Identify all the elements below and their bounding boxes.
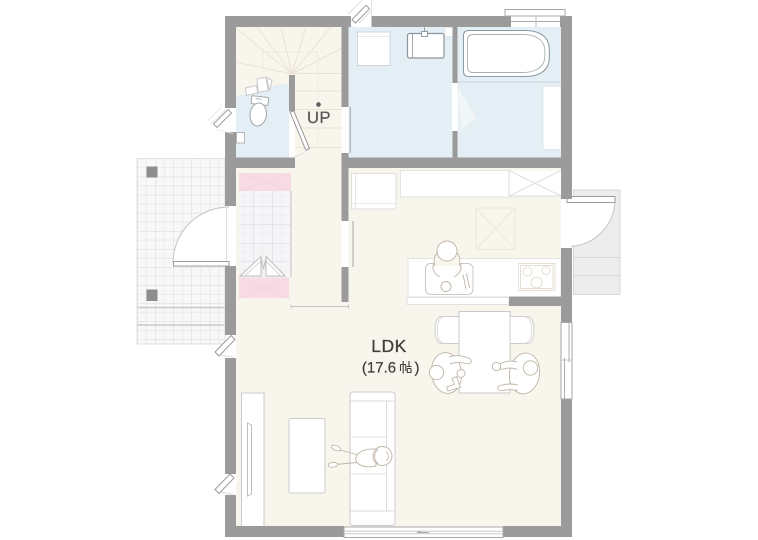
svg-text:(17.6: (17.6 [362, 359, 396, 376]
svg-text:UP: UP [307, 109, 331, 127]
svg-text:): ) [414, 359, 419, 376]
svg-text:LDK: LDK [371, 336, 407, 356]
